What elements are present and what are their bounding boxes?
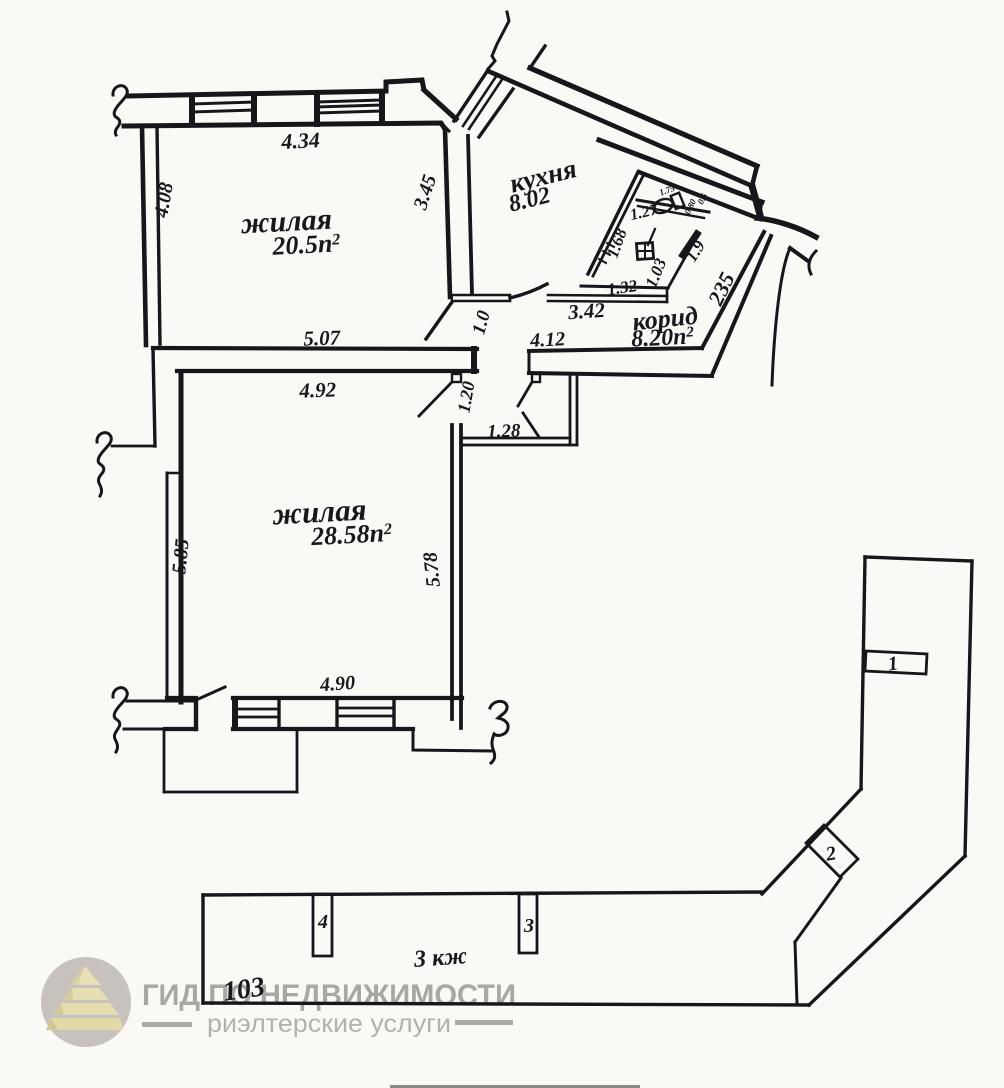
svg-text:риэлтерские услуги: риэлтерские услуги <box>207 1010 451 1038</box>
svg-text:28.58п2: 28.58п2 <box>309 518 392 551</box>
svg-text:5.78: 5.78 <box>419 551 445 588</box>
svg-text:3: 3 <box>523 915 534 937</box>
svg-text:8.20п2: 8.20п2 <box>631 323 696 352</box>
svg-text:1.28: 1.28 <box>487 420 521 442</box>
svg-text:ГИД ПО НЕДВИЖИМОСТИ: ГИД ПО НЕДВИЖИМОСТИ <box>142 979 516 1012</box>
svg-text:5.07: 5.07 <box>303 325 342 350</box>
svg-text:3 кж: 3 кж <box>412 943 468 973</box>
svg-text:3.42: 3.42 <box>566 298 606 325</box>
svg-text:103: 103 <box>221 971 267 1008</box>
svg-text:5.85: 5.85 <box>168 538 194 575</box>
svg-text:4.34: 4.34 <box>280 127 321 154</box>
svg-text:20.5п2: 20.5п2 <box>271 228 341 261</box>
svg-text:4.12: 4.12 <box>529 328 566 352</box>
svg-text:4.92: 4.92 <box>298 377 337 402</box>
svg-text:4: 4 <box>317 911 328 933</box>
svg-text:4.90: 4.90 <box>318 672 355 696</box>
